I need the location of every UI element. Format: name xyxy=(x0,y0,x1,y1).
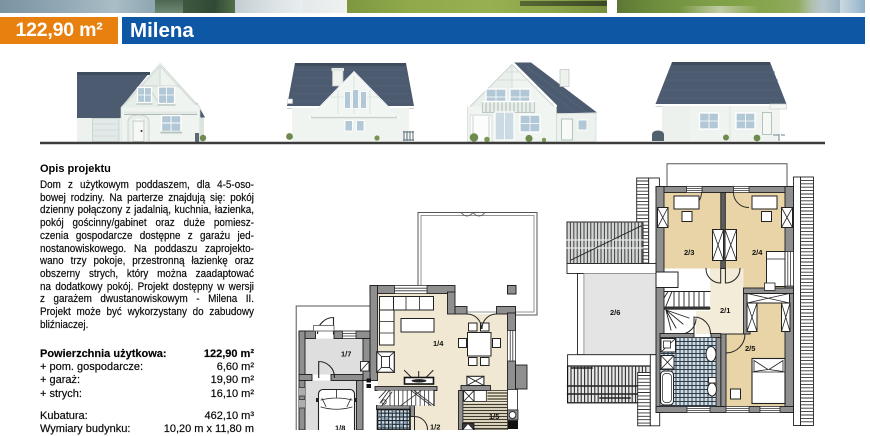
svg-text:2/1: 2/1 xyxy=(720,306,730,315)
svg-text:1/7: 1/7 xyxy=(341,350,351,359)
svg-text:1/8: 1/8 xyxy=(335,424,345,431)
svg-text:2/6: 2/6 xyxy=(610,308,620,317)
svg-text:1/2: 1/2 xyxy=(430,423,440,431)
svg-text:2/4: 2/4 xyxy=(752,248,763,257)
svg-text:1/4: 1/4 xyxy=(433,339,444,348)
svg-text:2/3: 2/3 xyxy=(684,248,694,257)
svg-text:2/5: 2/5 xyxy=(745,344,755,353)
svg-text:1/5: 1/5 xyxy=(489,412,499,421)
